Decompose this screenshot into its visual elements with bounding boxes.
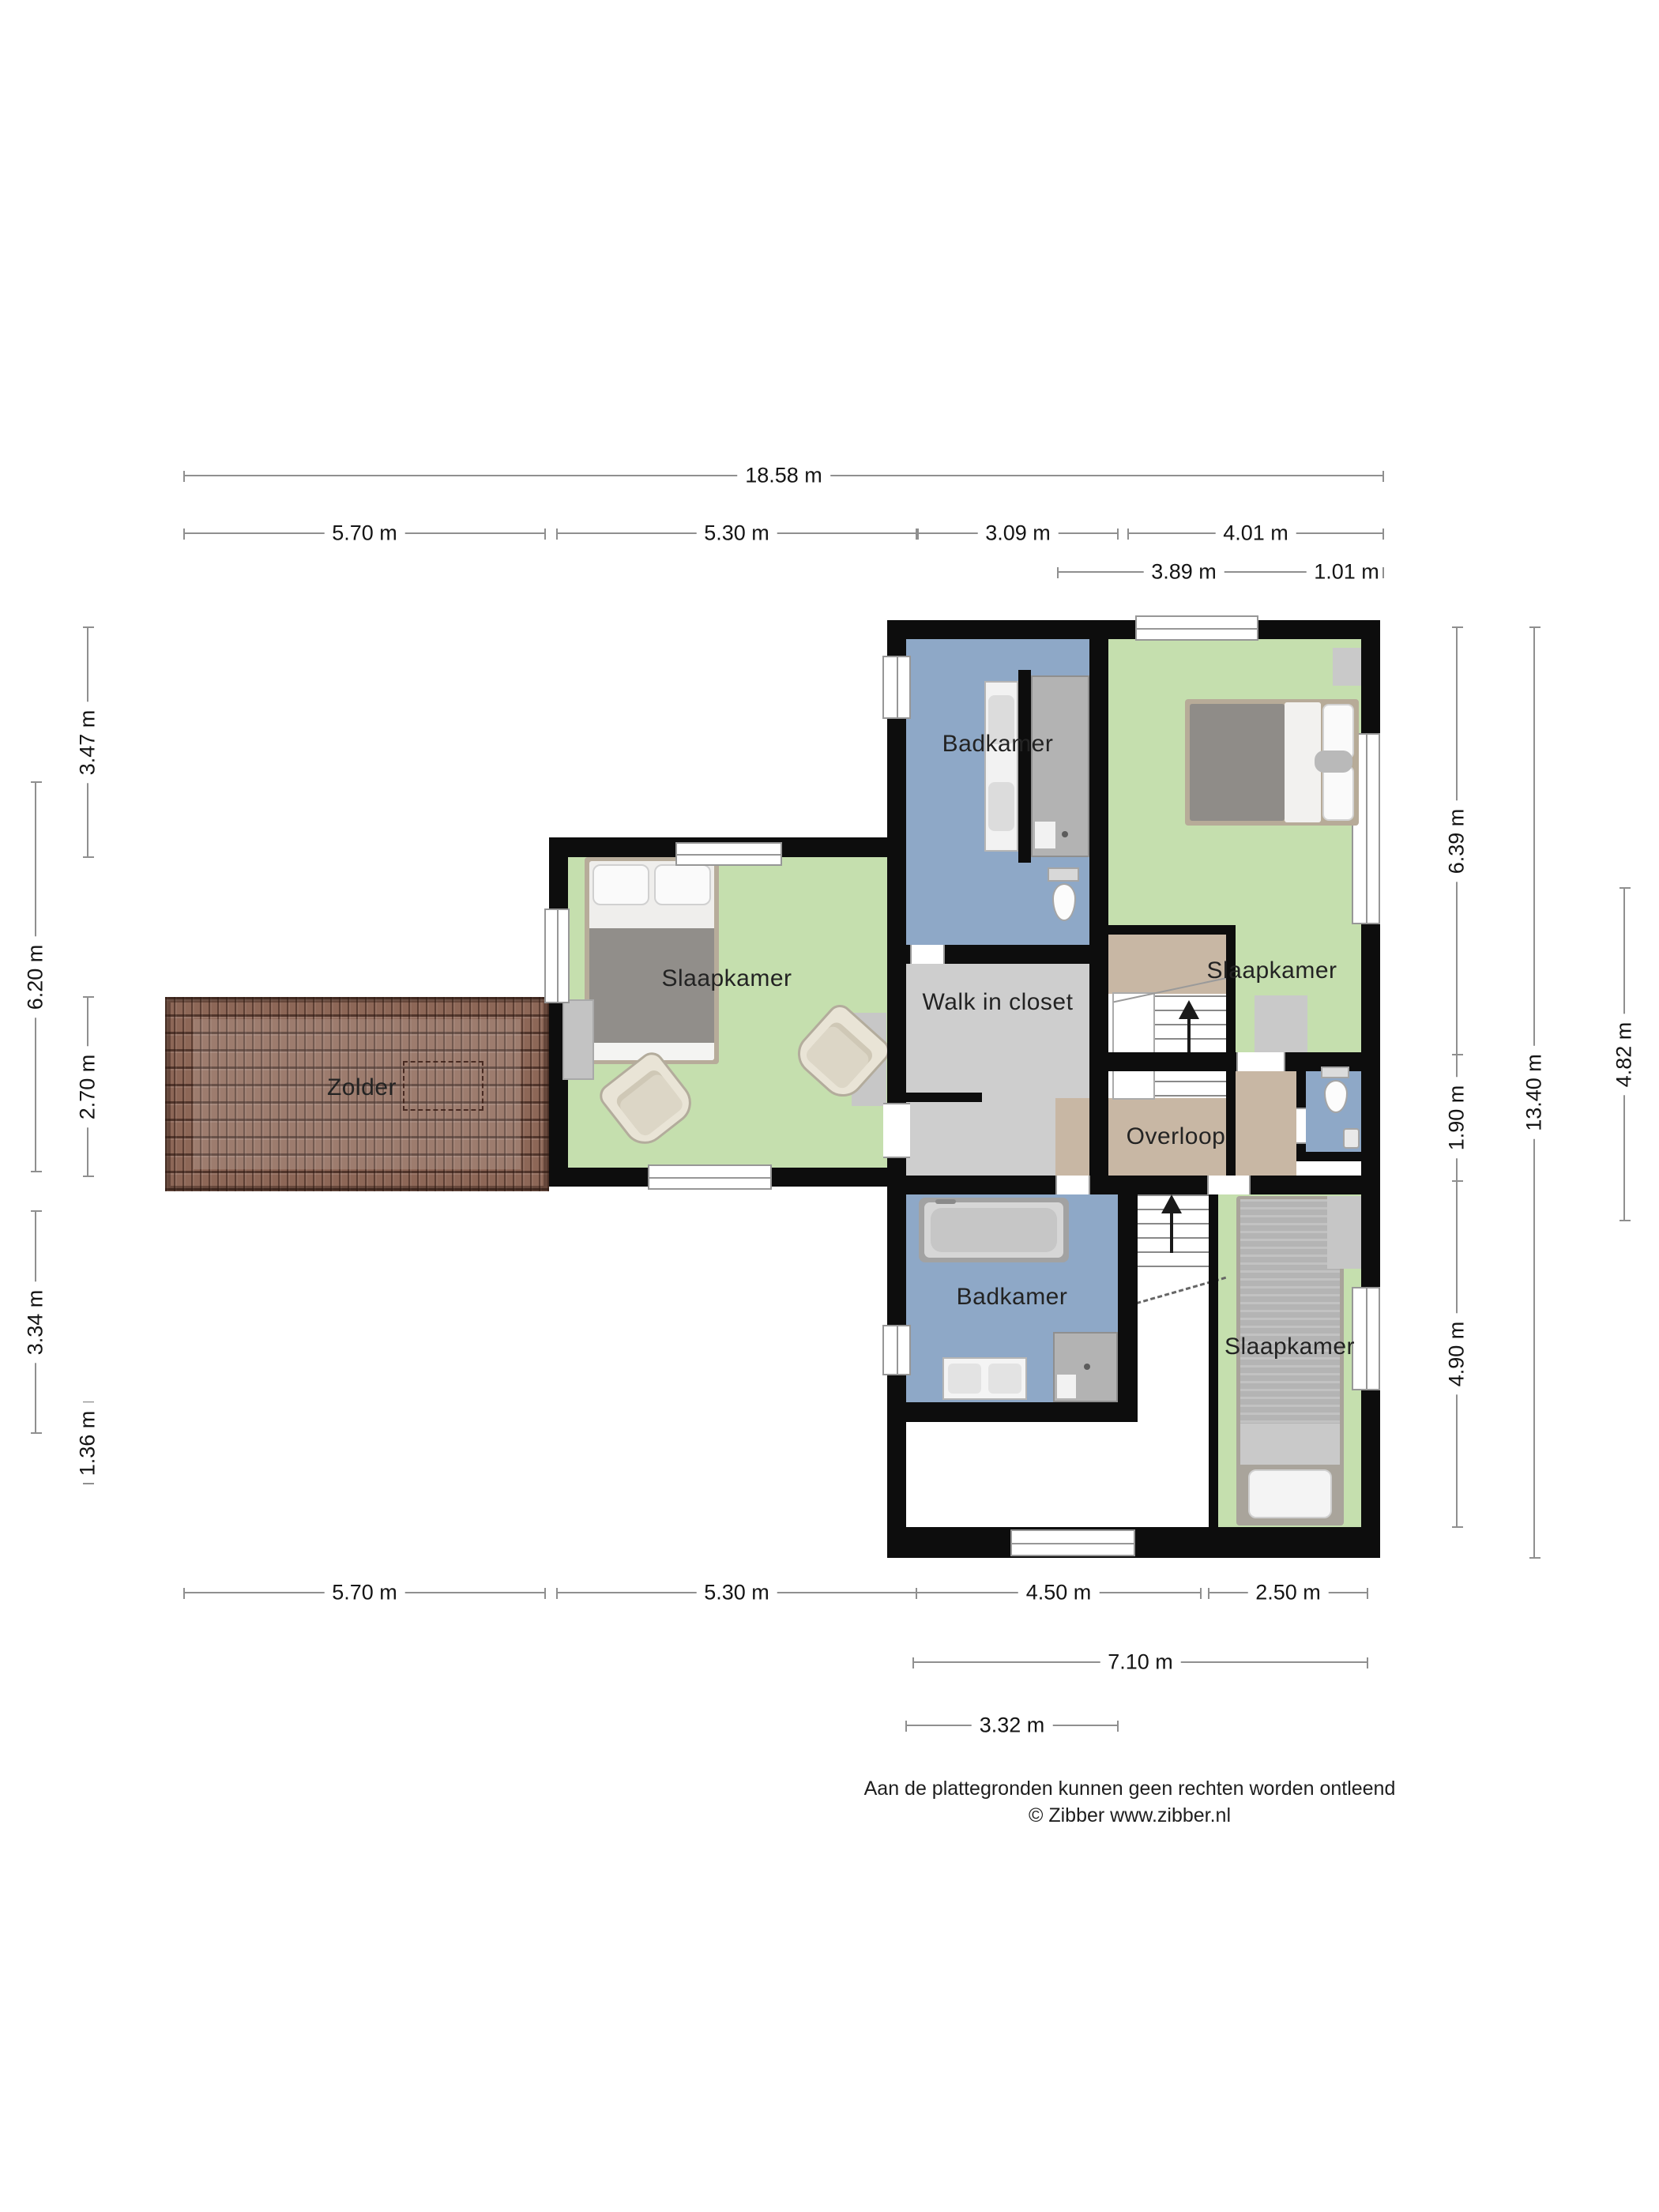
floor-plan-page: 18.58 m 5.70 m 5.30 m 3.09 m 4.01 m 3.89… [0, 0, 1659, 2212]
dim-top-total-label: 18.58 m [737, 464, 830, 488]
dim-left-inner-3: 1.36 m [87, 1402, 88, 1484]
shower-top-tray [1035, 822, 1055, 848]
label-slaapkamer-top: Slaapkamer [1177, 957, 1367, 984]
bed-bottom-pillow [1248, 1469, 1332, 1518]
dim-top-sub-2-label: 1.01 m [1306, 560, 1387, 585]
dim-top-sub-1-label: 3.89 m [1143, 560, 1224, 585]
bed-top-blanket [1190, 704, 1285, 821]
dim-bottom-sub-2-label: 3.32 m [972, 1714, 1053, 1738]
dim-left-inner-1-label: 3.47 m [76, 702, 100, 783]
window-wing-top [675, 842, 782, 866]
wall-shaft-right [1209, 1194, 1218, 1527]
dim-top-seg-2-label: 5.30 m [696, 521, 777, 546]
dim-bottom-seg-2-label: 5.30 m [696, 1581, 777, 1605]
dim-right-col1-2-label: 1.90 m [1445, 1078, 1469, 1159]
dim-left-outer-1-label: 6.20 m [24, 936, 48, 1018]
dim-right-col1-1-label: 6.39 m [1445, 800, 1469, 882]
dim-right-col1-1: 6.39 m [1456, 627, 1458, 1055]
label-badkamer-bottom: Badkamer [906, 1284, 1118, 1311]
dim-top-total: 18.58 m [184, 475, 1383, 476]
closet-bottom-slaapkamer [1327, 1196, 1361, 1269]
window-wing-bottom [648, 1164, 772, 1190]
door-overloop-stairs [1207, 1176, 1251, 1194]
wall-wic-stub [906, 1093, 982, 1102]
dim-bottom-sub-1: 7.10 m [913, 1661, 1367, 1663]
dim-right-total-label: 13.40 m [1522, 1046, 1547, 1139]
dim-top-sub-1: 3.89 m [1058, 571, 1310, 573]
dim-bottom-sub-1-label: 7.10 m [1100, 1650, 1181, 1675]
bed-left-pillow-2 [654, 864, 711, 905]
wall-divider-mid [1089, 639, 1108, 1177]
toilet-small-tank [1321, 1066, 1349, 1078]
shower-top-head [1062, 831, 1068, 837]
dim-left-outer-2-label: 3.34 m [24, 1281, 48, 1363]
bed-top-cushion [1315, 750, 1352, 773]
wall-badkamer-bottom-right [1118, 1194, 1138, 1422]
disclaimer-line-2: © Zibber www.zibber.nl [853, 1803, 1406, 1830]
dim-top-sub-2: 1.01 m [1310, 571, 1383, 573]
label-walk-in-closet: Walk in closet [906, 989, 1089, 1016]
nightstand-top [1333, 648, 1361, 686]
dim-bottom-seg-3-label: 4.50 m [1018, 1581, 1100, 1605]
dim-right-col1-3: 4.90 m [1456, 1181, 1458, 1527]
upper-stairs-void [1112, 992, 1155, 1100]
dim-top-seg-4-label: 4.01 m [1215, 521, 1296, 546]
dim-bottom-seg-1-label: 5.70 m [324, 1581, 405, 1605]
toilet-small-sink [1343, 1128, 1360, 1149]
dim-top-seg-4: 4.01 m [1128, 532, 1383, 534]
dim-right-sub: 4.82 m [1623, 888, 1625, 1221]
toilet-top-tank [1048, 867, 1079, 882]
window-main-bottom [1010, 1529, 1135, 1556]
bathtub-basin [931, 1208, 1057, 1252]
dim-bottom-seg-4-label: 2.50 m [1247, 1581, 1329, 1605]
wall-toilet-bottom [1296, 1152, 1361, 1161]
rug-top-slaapkamer [1255, 995, 1307, 1052]
bed-bottom-mattress [1240, 1199, 1340, 1424]
dim-bottom-seg-3: 4.50 m [916, 1592, 1201, 1593]
bathtub-faucet [935, 1199, 956, 1204]
dim-top-seg-1: 5.70 m [184, 532, 545, 534]
dim-bottom-sub-2: 3.32 m [906, 1725, 1118, 1726]
vanity-top-basin-2 [988, 782, 1014, 831]
dim-right-total: 13.40 m [1533, 627, 1535, 1558]
window-main-top [1135, 615, 1258, 641]
dim-left-inner-1: 3.47 m [87, 627, 88, 857]
label-badkamer-top: Badkamer [906, 731, 1089, 758]
window-main-left-bottom [882, 1325, 911, 1375]
dim-top-seg-1-label: 5.70 m [324, 521, 405, 546]
door-wing [883, 1103, 910, 1158]
door-toilet [1296, 1108, 1306, 1144]
wall-stair-notch-top [1108, 925, 1236, 935]
label-slaapkamer-bottom: Slaapkamer [1218, 1334, 1361, 1360]
dim-bottom-seg-1: 5.70 m [184, 1592, 545, 1593]
wall-hall-band [906, 1176, 1361, 1194]
bed-left-pillow-1 [592, 864, 649, 905]
door-slaapkamer-top [1236, 1052, 1285, 1071]
dim-left-inner-3-label: 1.36 m [76, 1402, 100, 1484]
dim-left-inner-2-label: 2.70 m [76, 1046, 100, 1127]
dim-left-inner-2: 2.70 m [87, 997, 88, 1176]
disclaimer-line-1: Aan de plattegronden kunnen geen rechten… [853, 1776, 1406, 1803]
upper-stairs-arrow-head [1179, 1000, 1199, 1019]
label-overloop: Overloop [1055, 1123, 1296, 1150]
dim-bottom-seg-2: 5.30 m [557, 1592, 916, 1593]
dim-right-col1-2: 1.90 m [1456, 1055, 1458, 1181]
dim-right-col1-3-label: 4.90 m [1445, 1314, 1469, 1395]
bed-bottom-band [1240, 1424, 1340, 1465]
dim-top-seg-3-label: 3.09 m [977, 521, 1059, 546]
dim-bottom-seg-4: 2.50 m [1209, 1592, 1367, 1593]
window-wing-left [544, 908, 570, 1003]
shower-bottom-tray [1057, 1375, 1076, 1398]
wall-badkamer-bottom-south [887, 1402, 1138, 1422]
dim-top-seg-3: 3.09 m [918, 532, 1118, 534]
closet-left-wing [562, 999, 594, 1080]
vanity-bottom-basin-1 [948, 1364, 981, 1394]
door-overloop-badkamer [1055, 1176, 1090, 1194]
dim-right-sub-label: 4.82 m [1612, 1014, 1637, 1095]
label-slaapkamer-left: Slaapkamer [632, 965, 822, 992]
window-main-left-top [882, 656, 911, 719]
door-badkamer-top [910, 945, 945, 964]
lower-stairs-arrow-stem [1170, 1212, 1173, 1253]
label-zolder: Zolder [267, 1074, 457, 1101]
bed-top-pillow-2 [1322, 766, 1354, 821]
dim-left-outer-1: 6.20 m [35, 782, 36, 1172]
vanity-bottom-basin-2 [988, 1364, 1021, 1394]
shower-bottom-head [1084, 1364, 1090, 1370]
wall-shower-stub [1018, 670, 1031, 863]
lower-stairs-arrow-head [1161, 1194, 1182, 1213]
disclaimer: Aan de plattegronden kunnen geen rechten… [853, 1776, 1406, 1830]
dim-left-outer-2: 3.34 m [35, 1211, 36, 1433]
dim-top-seg-2: 5.30 m [557, 532, 916, 534]
